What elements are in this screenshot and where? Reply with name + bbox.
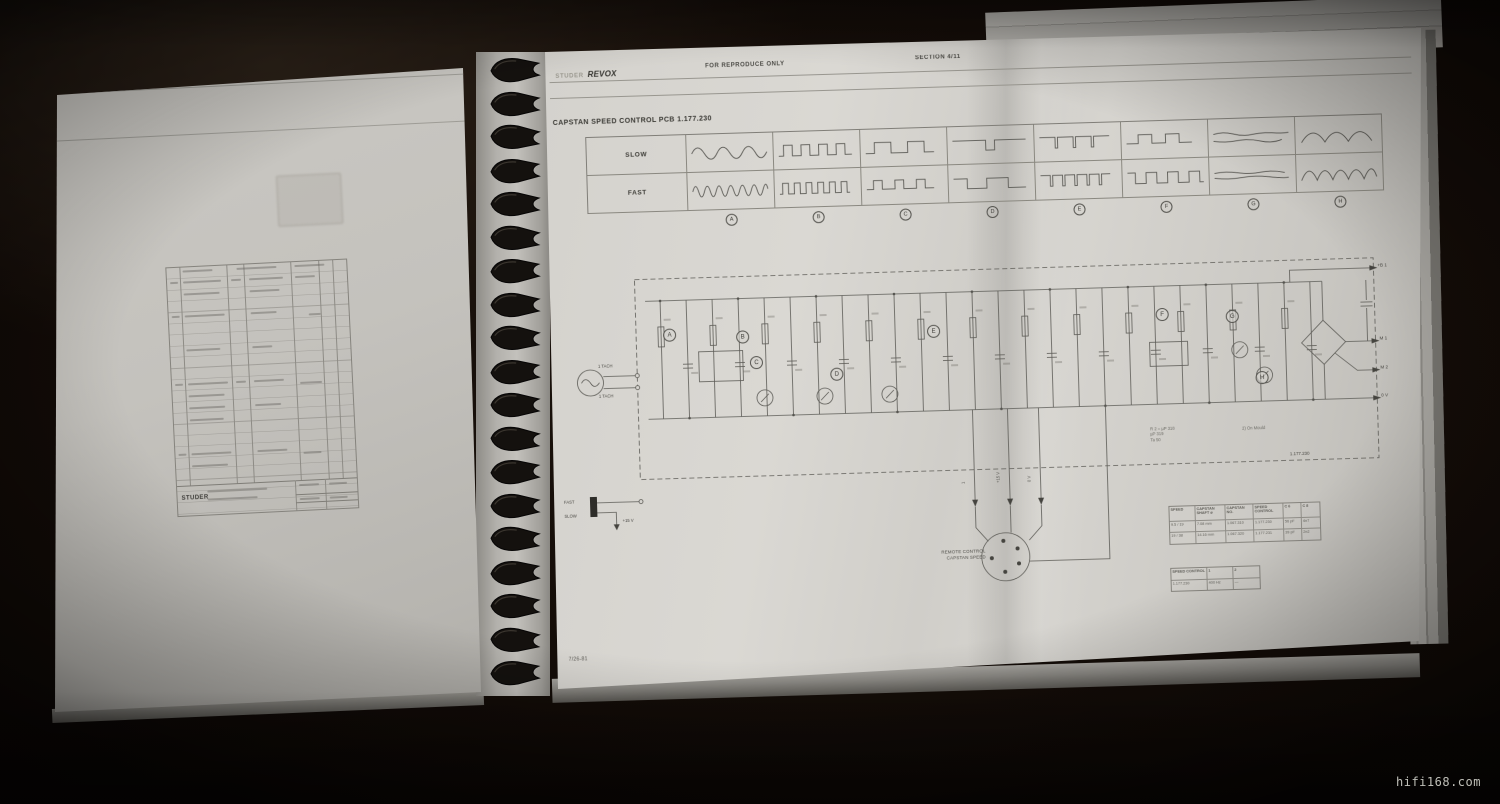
waveform-humps_fast: [1299, 158, 1380, 186]
branch-wire: [1232, 284, 1236, 402]
waveform-square_fast: [777, 174, 858, 202]
component-label-smudge: [1027, 308, 1034, 310]
text-smudge: [172, 316, 180, 319]
waveform-cell-F: [1122, 158, 1210, 199]
text-smudge: [254, 379, 284, 383]
table-column-line: [290, 262, 302, 480]
binding-loop-shape: [486, 190, 544, 218]
waveform-path: [1040, 173, 1110, 186]
component-label-smudge: [847, 367, 854, 369]
waveform-square_med2: [1125, 163, 1206, 191]
component-label-smudge: [691, 372, 698, 374]
binding-loop-path: [491, 92, 539, 115]
waveform-letter-E: E: [1073, 203, 1085, 215]
component-label-smudge: [923, 311, 930, 313]
spec-table-cell: 9.5 / 19: [1170, 521, 1196, 533]
branch-wire: [712, 299, 716, 417]
component-label-smudge: [1183, 303, 1190, 305]
junction-dot: [1312, 398, 1315, 401]
page-title: CAPSTAN SPEED CONTROL PCB 1.177.230: [553, 115, 712, 127]
down-arrow: [614, 524, 620, 530]
spec-table-cell: 1.067.310: [1226, 519, 1254, 531]
sheet-edge-line-3: [57, 120, 484, 142]
binding-loop-shape: [486, 55, 545, 85]
ic-block-1: [699, 351, 744, 382]
component-label-smudge: [1211, 356, 1218, 358]
spec-table-cell: 56 pF: [1284, 518, 1302, 530]
branch-wire: [1180, 286, 1184, 404]
binding-loop-path: [491, 293, 539, 316]
output-pin-label: M 2: [1380, 365, 1388, 370]
print-showthrough-ghost: [276, 173, 343, 227]
waveform-path: [1213, 138, 1281, 143]
header-rule-2: [550, 73, 1412, 100]
binding-loop: [486, 592, 544, 620]
text-smudge: [208, 496, 258, 501]
connector-wire: [972, 410, 975, 500]
binding-loop-shape: [486, 658, 545, 688]
binding-loop-shape: [486, 492, 544, 520]
din-pin: [1003, 570, 1007, 574]
component-label-smudge: [820, 314, 827, 316]
binding-loop-path: [491, 594, 539, 617]
component-label-smudge: [1235, 302, 1242, 304]
connector-wire: [1007, 409, 1010, 499]
text-smudge: [329, 482, 347, 485]
text-smudge: [178, 454, 186, 457]
down-arrow: [1007, 499, 1013, 506]
waveform-cell-A: [686, 132, 774, 173]
junction-dot: [971, 290, 974, 293]
component-label-smudge: [951, 364, 958, 366]
spec-table-header-cell: SPEED CONTROL: [1253, 504, 1283, 520]
header-section-text: SECTION 4/11: [915, 54, 961, 62]
waveform-path: [778, 143, 851, 156]
waveform-letter-C: C: [899, 208, 911, 220]
waveform-cell-E: [1034, 122, 1122, 163]
waveform-path: [1213, 130, 1288, 135]
component-label-smudge: [1079, 306, 1086, 308]
waveform-cell-B: [773, 130, 861, 171]
waveform-row-label: FAST: [587, 173, 688, 214]
branch-wire: [1154, 286, 1158, 404]
branch-wire: [1310, 282, 1314, 400]
component-label-smudge: [1287, 300, 1294, 302]
component-label-smudge: [1159, 358, 1166, 360]
binding-loop: [486, 423, 545, 453]
junction-dot: [1208, 401, 1211, 404]
binding-loop-shape: [486, 457, 545, 487]
branch-wire: [1284, 282, 1288, 400]
waveform-letter-D: D: [986, 206, 998, 218]
control-table: SPEED CONTROL121.177.230400 Hz—: [1170, 565, 1261, 592]
connector-wire: [1038, 408, 1041, 498]
waveform-row-label: SLOW: [586, 135, 687, 176]
waveform-cell-H: [1295, 114, 1383, 155]
junction-dot: [792, 414, 795, 417]
branch-wire: [686, 300, 690, 418]
binding-loop: [486, 256, 545, 286]
waveform-square_wide3: [1124, 125, 1205, 153]
left-page: STUDER: [55, 64, 483, 714]
supply-label: +15 V: [623, 519, 634, 524]
waveform-sine_slow: [689, 138, 770, 166]
binding-loop: [486, 658, 545, 688]
m2-wire: [1335, 352, 1373, 371]
component-label-smudge: [743, 370, 750, 372]
down-arrow: [1038, 498, 1044, 505]
transistor-element: [886, 390, 894, 398]
waveform-square_pair: [864, 171, 945, 199]
text-smudge: [186, 348, 220, 352]
photo-scene: STUDERREVOX FOR REPRODUCE ONLY SECTION 4…: [0, 0, 1500, 804]
spec-table-cell: 1.067.320: [1226, 530, 1254, 542]
branch-wire: [1024, 290, 1028, 408]
waveform-letter-G: G: [1247, 198, 1259, 210]
text-smudge: [255, 403, 281, 407]
waveform-letter-A: A: [726, 214, 738, 226]
waveform-path: [780, 181, 851, 194]
brand-name: REVOX: [587, 69, 616, 79]
text-smudge: [250, 289, 280, 293]
junction-dot: [896, 411, 899, 414]
spec-table-cell: 4n7: [1302, 517, 1320, 529]
waveform-pulse_dense: [1038, 166, 1119, 194]
binding-loop-shape: [486, 222, 545, 252]
page-footer-number: 7/26-81: [569, 657, 588, 663]
branch-wire: [790, 297, 794, 415]
binding-loop: [486, 55, 545, 85]
waveform-sine_fast: [690, 176, 771, 204]
control-table-cell: 1.177.230: [1172, 580, 1208, 591]
branch-wire: [1076, 289, 1080, 407]
component-label-smudge: [1055, 361, 1062, 363]
spec-table-cell: 7.08 mm: [1196, 520, 1226, 532]
binding-loop: [486, 457, 545, 487]
edge-connector: [639, 500, 643, 504]
branch-wire: [868, 295, 872, 413]
spec-table-cell: 1.177.230: [1254, 519, 1284, 531]
branch-wire: [816, 296, 820, 414]
waveform-path: [691, 145, 766, 159]
component-label-smudge: [872, 312, 879, 314]
cap-wire: [1367, 308, 1368, 341]
text-smudge: [251, 311, 277, 315]
waveform-square_wide2: [951, 168, 1032, 196]
binding-loop: [486, 190, 544, 218]
waveform-letter-B: B: [812, 211, 824, 223]
connector-wire: [1010, 506, 1011, 533]
component-label-smudge: [899, 366, 906, 368]
schematic-note-2: 2) On Mould: [1242, 425, 1265, 431]
din-pin: [1016, 546, 1020, 550]
waveform-cell-G: [1209, 155, 1297, 196]
branch-wire: [1206, 285, 1210, 403]
vertical-pin-label: 1: [962, 482, 966, 484]
branch-wire: [920, 293, 924, 411]
binding-loop: [486, 90, 544, 118]
control-table-cell: —: [1234, 578, 1260, 589]
top-rail: [645, 281, 1322, 301]
tacho-wave: [581, 379, 599, 387]
text-smudge: [330, 496, 348, 499]
table-column-line: [243, 265, 255, 483]
text-smudge: [249, 277, 283, 281]
binding-loop-path: [491, 192, 539, 215]
bridge-wire: [1322, 281, 1323, 320]
junction-dot: [737, 297, 740, 300]
text-smudge: [189, 394, 225, 398]
waveform-path: [1127, 170, 1203, 183]
binding-loop-shape: [486, 122, 545, 152]
right-page-content: STUDERREVOX FOR REPRODUCE ONLY SECTION 4…: [542, 0, 1443, 692]
capstan-speed-control-schematic: [549, 246, 1433, 692]
control-table-header-cell: 1: [1207, 567, 1233, 580]
tacho-bottom-label: 1 TACH: [599, 394, 614, 399]
junction-dot: [1127, 286, 1130, 289]
spec-table-header-cell: SPEED: [1169, 506, 1195, 522]
table-column-line: [226, 265, 238, 483]
b1-feed: [1289, 268, 1369, 282]
branch-wire: [972, 292, 976, 410]
waveform-table: SLOWFAST: [585, 113, 1384, 214]
right-page: STUDERREVOX FOR REPRODUCE ONLY SECTION 4…: [543, 24, 1425, 692]
binding-loop: [486, 624, 545, 654]
transistor-element: [761, 394, 769, 402]
text-smudge: [303, 451, 321, 454]
text-smudge: [231, 279, 241, 282]
waveform-cell-G: [1208, 117, 1296, 158]
component-label-smudge: [1315, 353, 1322, 355]
speed-switch: [590, 497, 598, 517]
binding-loop-shape: [486, 356, 545, 386]
binding-loop-shape: [486, 323, 545, 353]
spec-table-cell: 19 / 38: [1170, 532, 1196, 544]
waveform-cell-E: [1035, 160, 1123, 201]
binding-loop-shape: [486, 624, 545, 654]
connector-wire: [975, 506, 988, 541]
fast-label: FAST: [564, 501, 575, 506]
waveform-path: [1126, 133, 1192, 144]
waveform-path: [1214, 170, 1284, 174]
header-center-text: FOR REPRODUCE ONLY: [705, 61, 785, 70]
text-smudge: [183, 280, 221, 284]
vertical-pin-label: 0 V: [1027, 476, 1032, 482]
branch-wire: [842, 296, 846, 414]
branch-wire: [660, 301, 664, 419]
table-column-line: [332, 260, 344, 478]
binding-loop: [486, 524, 545, 554]
branch-wire: [738, 299, 742, 417]
binding-loop: [486, 391, 544, 419]
spec-table-header-cell: CAPSTAN NO.: [1225, 504, 1253, 520]
waveform-path: [1301, 131, 1371, 142]
junction-dot: [659, 300, 662, 303]
bridge-rectifier: [1301, 320, 1346, 365]
control-table-header-cell: 2: [1233, 566, 1259, 579]
parts-list-table: STUDER: [165, 259, 359, 518]
binding-loop-shape: [486, 256, 545, 286]
text-smudge: [191, 451, 231, 455]
studer-logo: STUDER: [181, 495, 208, 502]
component-label-smudge: [975, 309, 982, 311]
waveform-letter-H: H: [1334, 196, 1346, 208]
text-smudge: [182, 269, 212, 273]
transistor-element: [821, 392, 829, 400]
switch-wire: [597, 512, 616, 525]
waveform-cell-D: [947, 125, 1035, 166]
spec-table-header-cell: C 6: [1283, 503, 1301, 519]
header-rule-1: [550, 57, 1412, 84]
text-smudge: [192, 464, 228, 468]
waveform-cell-C: [861, 165, 949, 206]
branch-wire: [894, 294, 898, 412]
waveform-path: [954, 177, 1026, 189]
binding-loop-shape: [486, 423, 545, 453]
binding-loop: [486, 155, 545, 185]
text-smudge: [207, 488, 267, 493]
text-smudge: [299, 483, 319, 486]
sheet-edge-line-1: [56, 50, 478, 72]
waveform-letter-F: F: [1160, 201, 1172, 213]
component-label-smudge: [716, 317, 723, 319]
binding-loop: [486, 222, 545, 252]
output-pin-label: M 1: [1379, 336, 1387, 341]
branch-wire: [1050, 289, 1054, 407]
waveform-cell-H: [1296, 152, 1384, 193]
output-pin-label: 0 V: [1381, 393, 1388, 398]
left-page-content: STUDER: [53, 44, 512, 714]
text-smudge: [257, 449, 287, 453]
watermark-text: hifi168.com: [1396, 775, 1481, 789]
waveform-pulse_sparse: [1037, 128, 1118, 156]
down-arrow: [972, 500, 978, 507]
text-smudge: [184, 292, 220, 296]
waveform-square_med: [776, 136, 857, 164]
binding-loop-shape: [486, 524, 545, 554]
binding-loop: [486, 291, 544, 319]
component-label-smudge: [664, 319, 671, 321]
din-pin: [990, 556, 994, 560]
binding-loop: [486, 356, 545, 386]
binding-loop: [486, 557, 545, 587]
component-label-smudge: [768, 316, 775, 318]
binding-loop: [486, 122, 545, 152]
branch-wire: [998, 291, 1002, 409]
sheet-edge-line-2: [55, 73, 481, 95]
table-column-line: [318, 261, 330, 479]
din-connector: [981, 532, 1030, 581]
text-smudge: [189, 406, 225, 410]
junction-dot: [688, 417, 691, 420]
control-table-row: 1.177.230400 Hz—: [1172, 578, 1260, 591]
waveform-cell-A: [687, 170, 775, 211]
waveform-path: [1039, 135, 1109, 148]
junction-dot: [815, 295, 818, 298]
waveform-path: [952, 139, 1025, 151]
schematic-note-block: R 2 = µP 318 µP 319 Ta 50: [1150, 426, 1175, 442]
waveform-flat_wavy: [1211, 123, 1292, 151]
output-pin-label: +B 1: [1377, 263, 1387, 268]
junction-dot: [1204, 283, 1207, 286]
binding-loop: [486, 492, 544, 520]
waveform-cell-C: [860, 127, 948, 168]
branch-wire: [946, 292, 950, 410]
waveform-path: [867, 178, 935, 189]
binding-loop-shape: [486, 592, 544, 620]
text-smudge: [236, 266, 276, 270]
waveform-cell-B: [774, 168, 862, 209]
text-smudge: [188, 381, 228, 385]
din-pin: [1001, 539, 1005, 543]
text-smudge: [294, 264, 324, 268]
binding-loop: [486, 323, 545, 353]
binding-loop-shape: [486, 557, 545, 587]
waveform-path: [865, 140, 934, 153]
binding-loop-shape: [486, 155, 545, 185]
waveform-square_wide: [863, 133, 944, 161]
text-smudge: [190, 418, 224, 422]
connector-wire: [1028, 505, 1042, 540]
binding-loop-shape: [486, 391, 544, 419]
binding-loop-path: [491, 393, 539, 416]
waveform-square_long: [950, 130, 1031, 158]
spec-table: SPEEDCAPSTAN SHAFT øCAPSTAN NO.SPEED CON…: [1168, 501, 1321, 544]
binding-loop-shape: [486, 291, 544, 319]
waveform-humps_slow: [1298, 120, 1379, 148]
spec-table-header-cell: CAPSTAN SHAFT ø: [1195, 505, 1225, 521]
spec-table-cell: 14.16 mm: [1196, 531, 1226, 543]
text-smudge: [309, 313, 321, 316]
junction-dot: [893, 293, 896, 296]
transistor-element: [1236, 346, 1244, 354]
cap-wire: [1366, 280, 1367, 300]
component-label-smudge: [1003, 363, 1010, 365]
waveform-path: [693, 184, 768, 197]
vertical-pin-label: +15 V: [996, 472, 1001, 483]
board-number-label: 1.177.230: [1290, 452, 1310, 457]
text-smudge: [295, 275, 315, 278]
connector-return-wire: [1025, 406, 1110, 561]
text-smudge: [170, 282, 178, 285]
switch-wire: [597, 502, 641, 503]
component-label-smudge: [1263, 355, 1270, 357]
waveform-flat_wavy2: [1212, 161, 1293, 189]
component-label-smudge: [795, 369, 802, 371]
text-smudge: [236, 381, 246, 384]
spec-table-cell: 1.177.231: [1254, 530, 1284, 542]
spec-table-header-cell: C 8: [1301, 502, 1319, 518]
note-line-3: Ta 50: [1150, 436, 1175, 442]
tacho-wire: [604, 388, 638, 389]
edge-connector: [635, 374, 639, 378]
junction-dot: [1049, 288, 1052, 291]
brand-prefix: STUDER: [555, 73, 583, 80]
binding-loop-path: [491, 494, 539, 517]
tacho-top-label: 1 TACH: [598, 364, 613, 369]
text-smudge: [185, 314, 225, 318]
bridge-wire: [1324, 364, 1325, 399]
junction-dot: [1282, 281, 1285, 284]
component-label-smudge: [1131, 305, 1138, 307]
control-table-header-cell: SPEED CONTROL: [1171, 568, 1207, 581]
waveform-path: [1215, 175, 1289, 179]
text-smudge: [300, 497, 320, 500]
component-label-smudge: [1107, 359, 1114, 361]
waveform-path: [1301, 168, 1376, 180]
waveform-cell-F: [1121, 120, 1209, 161]
slow-label: SLOW: [564, 514, 576, 519]
